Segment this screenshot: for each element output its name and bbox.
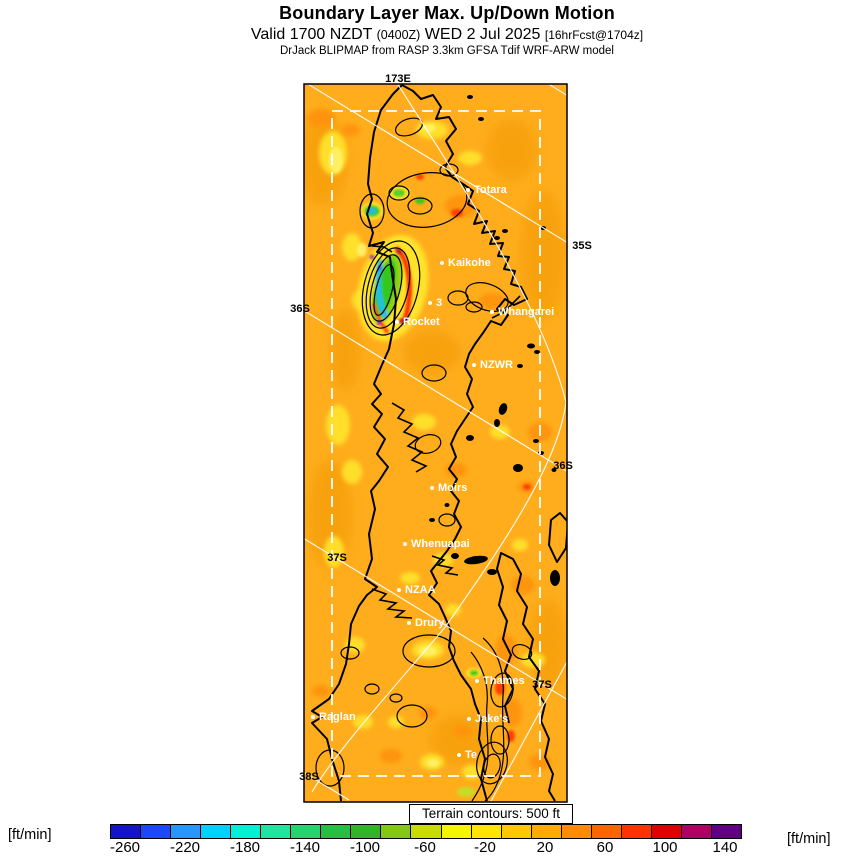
valid-utc: (0400Z) [377, 28, 421, 42]
site-kaikohe: Kaikohe [440, 254, 491, 272]
site-marker-dot [490, 310, 494, 314]
site-nzwr: NZWR [472, 356, 513, 374]
latitude-label: 36S [553, 460, 573, 472]
site-marker-dot [472, 363, 476, 367]
colorbar-segment [410, 825, 440, 838]
valid-line: Valid 1700 NZDT (0400Z) WED 2 Jul 2025 [… [47, 26, 847, 44]
colorbar-segment [471, 825, 501, 838]
forecast-tag: [16hrFcst@1704z] [545, 28, 643, 42]
colorbar-segment [621, 825, 651, 838]
latitude-label: 37S [532, 679, 552, 691]
colorbar-segment [290, 825, 320, 838]
site-label: Moirs [438, 482, 467, 494]
site-marker-dot [457, 753, 461, 757]
valid-date: WED 2 Jul 2025 [420, 26, 545, 43]
site-nzaa: NZAA [397, 581, 436, 599]
site-label: Jake's [475, 713, 508, 725]
colorbar-segment [260, 825, 290, 838]
colorbar-tick-label: -180 [230, 839, 260, 856]
colorbar-tick-label: 60 [597, 839, 614, 856]
colorbar-segment [711, 825, 741, 838]
latitude-label: 38S [299, 771, 319, 783]
colorbar-segment [651, 825, 681, 838]
site-rocket: Rocket [395, 313, 440, 331]
site-whenuapai: Whenuapai [403, 535, 470, 553]
colorbar-tick-label: -20 [474, 839, 496, 856]
site-marker-dot [428, 301, 432, 305]
colorbar-tick-label: -100 [350, 839, 380, 856]
colorbar-tick-label: -260 [110, 839, 140, 856]
site-label: Thames [483, 675, 525, 687]
site-marker-dot [397, 588, 401, 592]
colorbar-tick-label: 20 [537, 839, 554, 856]
blipmap-map [303, 83, 568, 803]
colorbar-tick-label: 100 [652, 839, 677, 856]
colorbar-segment [350, 825, 380, 838]
colorbar-tick-label: -60 [414, 839, 436, 856]
colorbar-segment [441, 825, 471, 838]
valid-time: Valid 1700 NZDT [251, 26, 377, 43]
site-drury: Drury [407, 614, 444, 632]
site-label: Rocket [403, 316, 440, 328]
colorbar-segment [230, 825, 260, 838]
site-te: Te [457, 746, 477, 764]
page-title: Boundary Layer Max. Up/Down Motion [47, 3, 847, 24]
terrain-note: Terrain contours: 500 ft [409, 804, 573, 824]
map-field [303, 83, 568, 803]
site-label: NZAA [405, 584, 436, 596]
site-marker-dot [403, 542, 407, 546]
site-moirs: Moirs [430, 479, 467, 497]
site-totara: Totara [466, 181, 507, 199]
colorbar-segment [681, 825, 711, 838]
site-label: Totara [474, 184, 507, 196]
site-whangarei: Whangarei [490, 303, 554, 321]
colorbar-tick-label: -140 [290, 839, 320, 856]
site-marker-dot [475, 679, 479, 683]
colorbar-segment [111, 825, 140, 838]
latitude-label: 35S [572, 240, 592, 252]
colorbar-segment [170, 825, 200, 838]
site-marker-dot [440, 261, 444, 265]
latitude-label: 37S [327, 552, 347, 564]
site-marker-dot [430, 486, 434, 490]
colorbar-unit-right: [ft/min] [787, 831, 831, 847]
colorbar-segment [200, 825, 230, 838]
site-label: Te [465, 749, 477, 761]
colorbar-tick-label: -220 [170, 839, 200, 856]
site-label: Drury [415, 617, 444, 629]
colorbar-segment [320, 825, 350, 838]
colorbar-ticks: -260-220-180-140-100-60-202060100140 [110, 839, 740, 857]
site-marker-dot [311, 715, 315, 719]
colorbar-unit-left: [ft/min] [8, 827, 52, 843]
longitude-label: 173E [385, 73, 411, 85]
site-raglan: Raglan [311, 708, 356, 726]
colorbar-segment [561, 825, 591, 838]
latitude-label: 36S [290, 303, 310, 315]
colorbar-segment [531, 825, 561, 838]
colorbar-tick-label: 140 [712, 839, 737, 856]
colorbar-segment [591, 825, 621, 838]
site-thames: Thames [475, 672, 525, 690]
colorbar-segment [501, 825, 531, 838]
site-label: 3 [436, 297, 442, 309]
site-marker-dot [395, 320, 399, 324]
site-label: Kaikohe [448, 257, 491, 269]
blipmap-page: Boundary Layer Max. Up/Down Motion Valid… [0, 0, 850, 860]
site-3: 3 [428, 294, 442, 312]
site-label: Whangarei [498, 306, 554, 318]
model-line: DrJack BLIPMAP from RASP 3.3km GFSA Tdif… [47, 45, 847, 57]
site-label: NZWR [480, 359, 513, 371]
site-label: Raglan [319, 711, 356, 723]
colorbar-segment [140, 825, 170, 838]
colorbar-segment [380, 825, 410, 838]
site-marker-dot [407, 621, 411, 625]
site-label: Whenuapai [411, 538, 470, 550]
site-marker-dot [467, 717, 471, 721]
header: Boundary Layer Max. Up/Down Motion Valid… [47, 0, 847, 57]
colorbar [110, 824, 742, 839]
site-marker-dot [466, 188, 470, 192]
site-jake-s: Jake's [467, 710, 508, 728]
